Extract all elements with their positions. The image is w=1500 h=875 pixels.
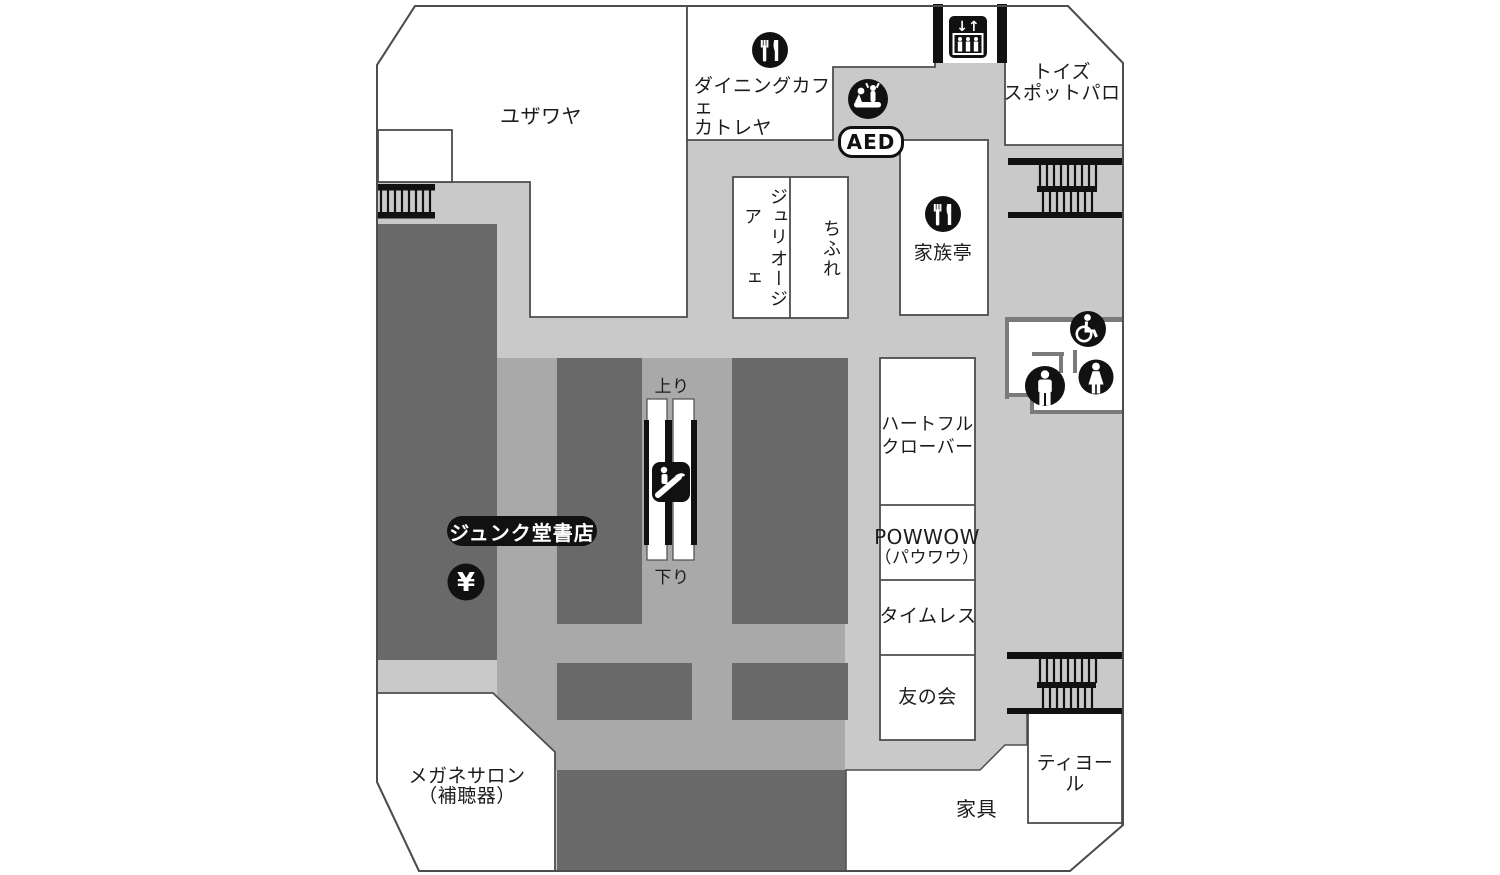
svg-text:↓↑: ↓↑: [956, 19, 979, 35]
escalator: [644, 399, 697, 560]
label-kazokutei: 家族亭: [883, 243, 1003, 264]
escalator-icon: [652, 462, 690, 502]
wheelchair-icon: [1070, 311, 1106, 347]
restaurant-icon-cafe: [752, 32, 788, 68]
label-tiyol: ティヨール: [1030, 753, 1120, 795]
label-timeless: タイムレス: [878, 606, 978, 627]
label-chifure: ちふれ: [797, 190, 843, 308]
label-kagu: 家具: [944, 799, 1009, 820]
label-toys-spot: トイズ スポットパロ: [992, 62, 1132, 104]
label-powwow: POWWOW （パウワウ）: [872, 527, 982, 569]
label-dining-cafe: ダイニングカフェ カトレヤ: [694, 76, 844, 139]
aed-icon: [848, 79, 888, 119]
label-yuzawaya: ユザワヤ: [461, 106, 621, 127]
aed-label: AED: [838, 126, 904, 158]
label-escalator-up: 上り: [647, 377, 697, 398]
womens-restroom-icon: [1079, 360, 1114, 395]
label-tomonokai: 友の会: [880, 687, 975, 708]
elevator-icon: ↓↑: [949, 16, 987, 58]
label-escalator-down: 下り: [647, 568, 697, 589]
atm-icon: ¥: [448, 564, 485, 601]
svg-text:¥: ¥: [457, 568, 475, 598]
floor-map: ¥ ↓↑ ユザワヤ ダイニングカフェ カトレヤ トイズ スポットパロ ジュリア …: [0, 0, 1500, 875]
room-backroom: [378, 130, 452, 182]
restaurant-icon-kazokutei: [925, 196, 961, 232]
label-megane-salon: メガネサロン （補聴器）: [392, 766, 542, 806]
mens-restroom-icon: [1025, 366, 1065, 406]
label-julia-oje: ジュリア オージェ: [734, 186, 790, 310]
label-heartful-clover: ハートフル クローバー: [880, 413, 975, 459]
junkudo-badge: ジュンク堂書店: [447, 516, 597, 546]
